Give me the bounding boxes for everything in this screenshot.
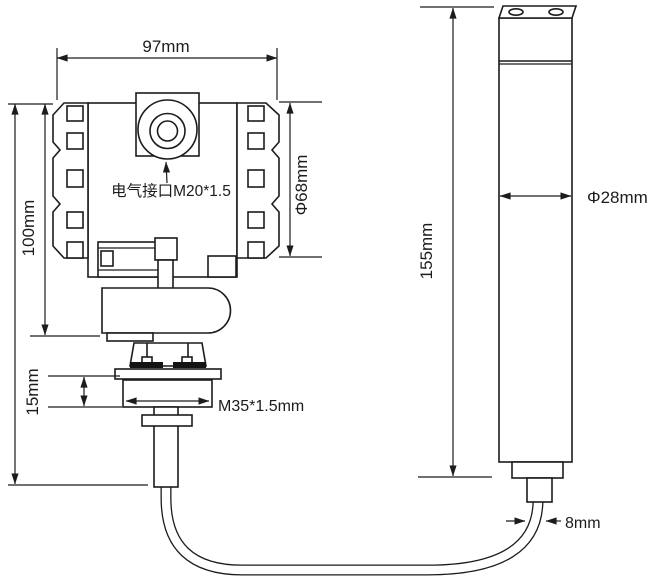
seal-right [173,362,206,368]
electrical-port [136,93,199,159]
capsule-bottom-tab [107,333,153,341]
side-step-block [208,256,236,277]
nameplate-bracket [98,242,162,277]
stem-collar [142,415,192,426]
transmitter-front-view [53,93,279,487]
probe-tube [499,18,572,462]
seal-left [130,362,163,368]
label-cable-diameter-8mm: 8mm [565,515,601,532]
label-electrical-port: 电气接口M20*1.5 [111,182,231,200]
dimension-drawing: 97mm 100mm Φ68mm 电气接口M20*1.5 15mm M35*1.… [0,0,650,584]
transmitter-left-cover [53,103,88,258]
connection-cable [166,484,538,570]
label-height-100mm: 100mm [19,200,38,257]
probe-vent-hole-left [509,9,523,15]
probe-end-step [512,462,563,478]
technical-drawing-page: 97mm 100mm Φ68mm 电气接口M20*1.5 15mm M35*1.… [0,0,650,584]
neck-stem [158,260,173,290]
sensor-capsule [102,288,231,333]
label-process-thread-m35: M35*1.5mm [218,398,304,415]
probe-side-view [499,6,576,502]
label-probe-height-155mm: 155mm [417,223,436,280]
label-width-97mm: 97mm [142,37,189,56]
label-thread-height-15mm: 15mm [23,368,42,415]
mounting-flange [115,369,221,379]
label-cover-diameter-68mm: Φ68mm [292,155,311,216]
thread-block-m35 [123,380,212,407]
label-probe-diameter-28mm: Φ28mm [587,188,648,207]
neck-block [155,238,177,260]
dim-thread-height-15mm [48,376,122,407]
transmitter-right-cover [237,103,279,258]
hex-nut [130,343,206,368]
probe-cable-gland [527,478,552,502]
probe-vent-hole-right [549,9,563,15]
